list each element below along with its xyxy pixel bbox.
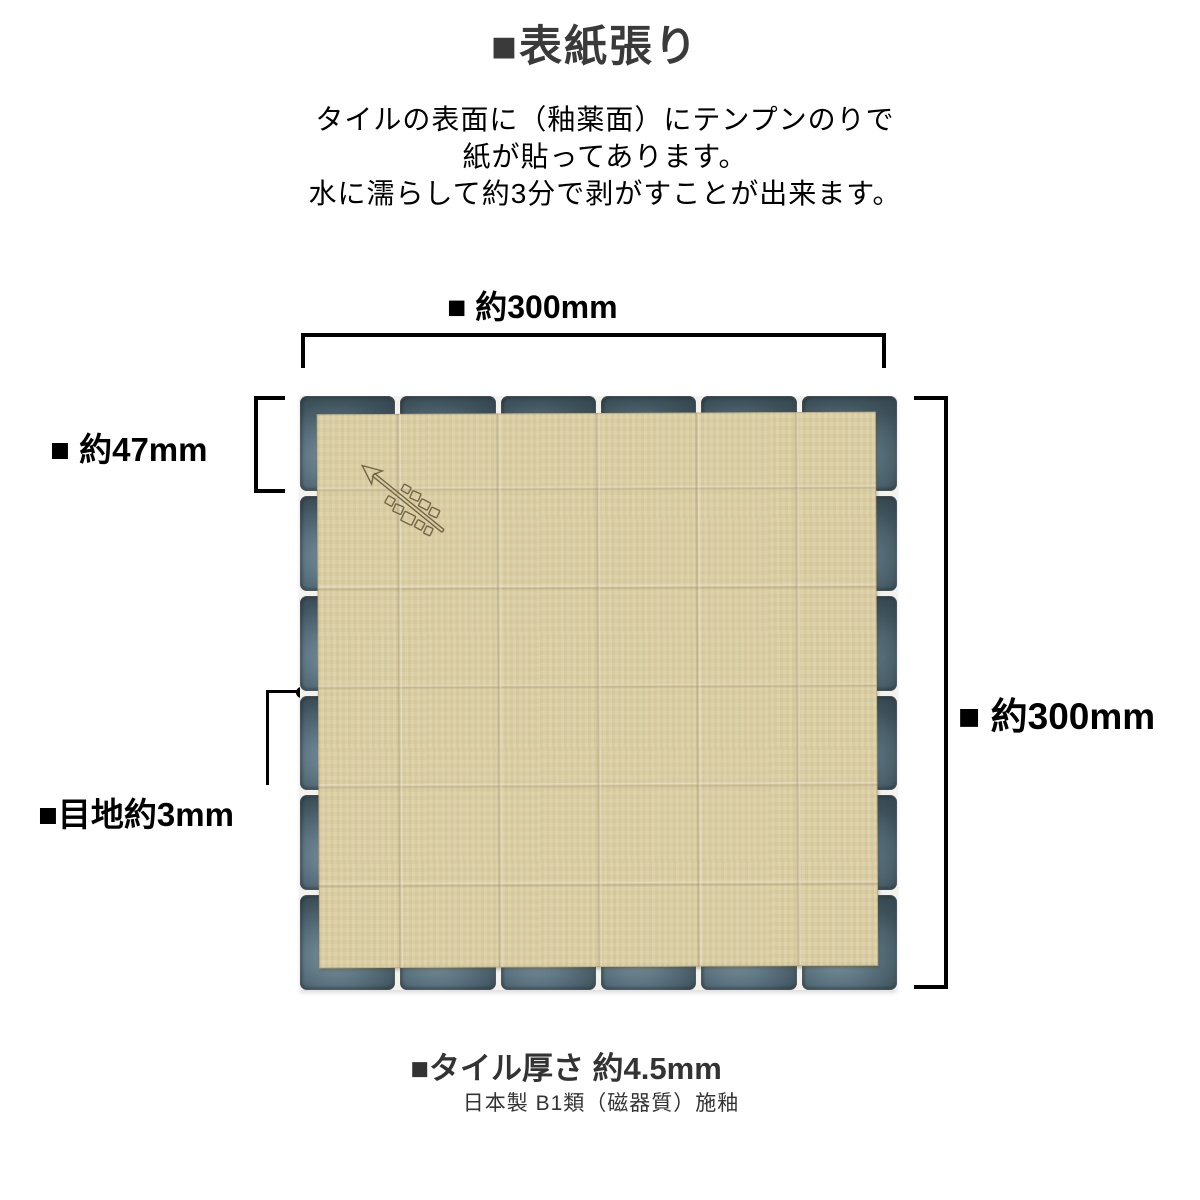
description-line-3: 水に濡らして約3分で剥がすことが出来ます。 [0, 175, 1200, 212]
dimension-label-tile-47mm: ■ 約47mm [50, 423, 208, 471]
dimension-bracket-right [914, 396, 948, 989]
tile-sheet-photo [300, 396, 897, 990]
page-title: ■表紙張り [0, 12, 1190, 74]
dimension-label-height-300mm: ■ 約300mm [958, 686, 1155, 740]
direction-arrow-stamp-icon [300, 396, 520, 576]
description-line-2: 紙が貼ってあります。 [0, 138, 1200, 175]
product-diagram-page: ■表紙張り タイルの表面に（釉薬面）にテンプンのりで 紙が貼ってあります。 水に… [0, 0, 1200, 1200]
dimension-label-width-300mm: ■ 約300mm [447, 282, 618, 328]
tile-thickness-label: ■タイル厚さ 約4.5mm [410, 1043, 722, 1088]
joint-pointer-line [266, 690, 303, 785]
dimension-label-joint-3mm: ■目地約3mm [38, 788, 234, 836]
description-line-1: タイルの表面に（釉薬面）にテンプンのりで [0, 101, 1200, 138]
dimension-bracket-top [301, 333, 886, 368]
description-text: タイルの表面に（釉薬面）にテンプンのりで 紙が貼ってあります。 水に濡らして約3… [0, 101, 1200, 212]
dimension-bracket-tile-size [254, 396, 285, 493]
origin-spec-label: 日本製 B1類（磁器質）施釉 [463, 1087, 740, 1117]
